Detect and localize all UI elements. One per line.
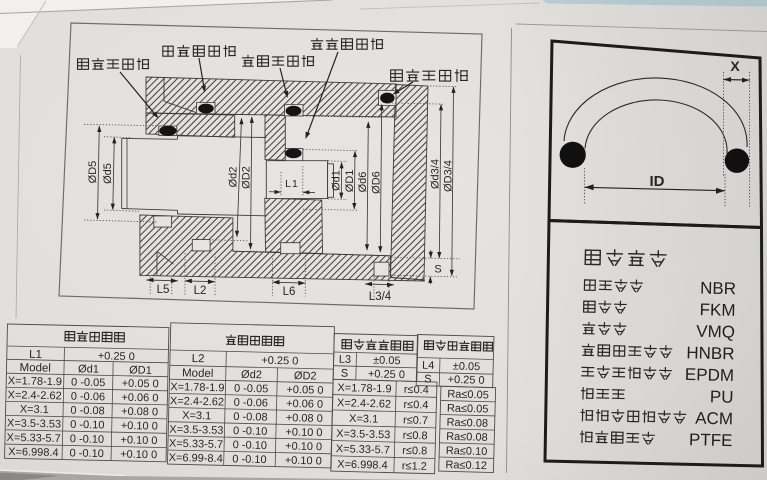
svg-text:L2: L2 (194, 285, 207, 297)
svg-text:Ød3/4: Ød3/4 (430, 159, 442, 189)
svg-text:X=3.1: X=3.1 (20, 403, 49, 416)
svg-text:0 -0.10: 0 -0.10 (70, 433, 105, 446)
svg-text:X=6.998.4: X=6.998.4 (337, 459, 388, 472)
svg-text:L1: L1 (29, 349, 42, 361)
svg-text:Ra≤0.08: Ra≤0.08 (446, 417, 488, 430)
svg-text:+0.10 0: +0.10 0 (120, 434, 157, 447)
svg-text:r≤0.7: r≤0.7 (403, 414, 428, 427)
svg-text:+0.10 0: +0.10 0 (121, 420, 158, 433)
svg-text:VMQ: VMQ (696, 322, 735, 342)
svg-text:0 -0.08: 0 -0.08 (233, 411, 268, 424)
svg-text:S: S (424, 373, 432, 385)
svg-text:+0.06 0: +0.06 0 (286, 398, 323, 411)
svg-text:ØD6: ØD6 (370, 171, 382, 194)
svg-text:ACM: ACM (695, 409, 733, 429)
svg-text:X=3.1: X=3.1 (182, 410, 211, 423)
svg-text:0 -0.06: 0 -0.06 (234, 397, 269, 410)
svg-text:X=3.5-3.53: X=3.5-3.53 (336, 428, 390, 441)
svg-text:ØD5: ØD5 (87, 161, 99, 184)
svg-text:ØD1: ØD1 (129, 364, 152, 376)
svg-text:Ra≤0.08: Ra≤0.08 (446, 431, 488, 444)
svg-text:0 -0.06: 0 -0.06 (71, 391, 106, 404)
svg-text:Model: Model (19, 362, 51, 375)
svg-text:+0.08 0: +0.08 0 (121, 406, 158, 419)
svg-text:FKM: FKM (699, 300, 735, 320)
svg-text:0 -0.10: 0 -0.10 (232, 453, 267, 466)
svg-text:Ød2: Ød2 (241, 369, 262, 381)
svg-text:Ød5: Ød5 (102, 163, 114, 184)
svg-text:EPDM: EPDM (685, 365, 735, 385)
svg-text:X=3.5-3.53: X=3.5-3.53 (169, 424, 223, 437)
svg-text:X: X (730, 58, 740, 74)
svg-text:ØD3/4: ØD3/4 (442, 160, 454, 192)
svg-text:+0.05 0: +0.05 0 (286, 384, 323, 397)
svg-text:Ød1: Ød1 (78, 363, 99, 375)
svg-text:r≤0.8: r≤0.8 (402, 430, 427, 443)
svg-text:0 -0.08: 0 -0.08 (70, 405, 105, 418)
svg-text:+0.05 0: +0.05 0 (122, 378, 159, 391)
svg-text:X=6.99-8.4: X=6.99-8.4 (169, 452, 223, 465)
svg-text:+0.10 0: +0.10 0 (285, 440, 322, 453)
svg-text:X=2.4-2.62: X=2.4-2.62 (7, 389, 61, 402)
svg-text:ID: ID (650, 173, 665, 190)
svg-text:X=2.4-2.62: X=2.4-2.62 (170, 395, 224, 408)
svg-text:Ød1: Ød1 (330, 170, 342, 191)
svg-text:S: S (341, 367, 349, 379)
svg-text:Model: Model (182, 367, 214, 380)
svg-text:r≤0.8: r≤0.8 (402, 445, 427, 458)
svg-text:±0.05: ±0.05 (453, 360, 481, 373)
svg-text:ØD2: ØD2 (240, 166, 252, 189)
svg-text:Ød6: Ød6 (357, 172, 369, 193)
svg-text:ØD1: ØD1 (344, 170, 356, 193)
svg-text:L3/4: L3/4 (369, 291, 392, 303)
svg-text:X=1.78-1.9: X=1.78-1.9 (170, 381, 224, 394)
svg-text:+0.25 0: +0.25 0 (368, 368, 405, 381)
svg-text:0 -0.05: 0 -0.05 (234, 383, 269, 396)
svg-text:Ra≤0.12: Ra≤0.12 (445, 459, 487, 472)
svg-text:X=3.5-3.53: X=3.5-3.53 (7, 417, 61, 430)
svg-text:0 -0.10: 0 -0.10 (233, 425, 268, 438)
svg-text:L6: L6 (283, 286, 296, 298)
svg-text:NBR: NBR (700, 278, 736, 298)
svg-text:Ød2: Ød2 (228, 167, 240, 188)
svg-text:+0.25 0: +0.25 0 (447, 374, 484, 387)
svg-text:PTFE: PTFE (689, 430, 733, 450)
svg-text:+0.10 0: +0.10 0 (120, 448, 157, 461)
svg-text:X=3.1: X=3.1 (349, 413, 378, 426)
svg-text:X=1.78-1.9: X=1.78-1.9 (8, 375, 62, 388)
svg-text:+0.10 0: +0.10 0 (285, 426, 322, 439)
svg-text:+0.06 0: +0.06 0 (121, 392, 158, 405)
svg-text:Ra≤0.05: Ra≤0.05 (447, 402, 489, 415)
svg-text:PU: PU (710, 387, 734, 407)
svg-text:Ra≤0.05: Ra≤0.05 (447, 388, 489, 401)
svg-text:L3: L3 (339, 354, 352, 366)
svg-text:r≤0.4: r≤0.4 (403, 399, 428, 412)
svg-text:X=1.78-1.9: X=1.78-1.9 (337, 382, 391, 395)
svg-text:0 -0.05: 0 -0.05 (71, 377, 106, 390)
svg-text:+0.25 0: +0.25 0 (98, 350, 135, 363)
svg-text:0 -0.10: 0 -0.10 (69, 447, 104, 460)
svg-text:L1: L1 (285, 178, 299, 190)
svg-text:X=5.33-5.7: X=5.33-5.7 (7, 432, 61, 445)
svg-text:ØD2: ØD2 (294, 370, 317, 383)
svg-text:L2: L2 (192, 353, 205, 365)
svg-text:HNBR: HNBR (686, 343, 735, 363)
svg-text:0 -0.10: 0 -0.10 (233, 439, 268, 452)
svg-text:r≤1.2: r≤1.2 (402, 460, 427, 473)
svg-text:X=6.998.4: X=6.998.4 (8, 446, 59, 459)
svg-text:X=2.4-2.62: X=2.4-2.62 (337, 397, 391, 410)
svg-text:0 -0.10: 0 -0.10 (70, 419, 105, 432)
svg-text:+0.25 0: +0.25 0 (261, 355, 298, 368)
svg-text:+0.08 0: +0.08 0 (286, 412, 323, 425)
svg-text:±0.05: ±0.05 (373, 355, 401, 368)
svg-text:X=5.33-5.7: X=5.33-5.7 (169, 438, 223, 451)
svg-text:Ra≤0.10: Ra≤0.10 (446, 445, 488, 458)
svg-text:X=5.33-5.7: X=5.33-5.7 (336, 443, 390, 456)
svg-text:S: S (434, 264, 441, 276)
svg-text:L4: L4 (422, 360, 435, 372)
svg-text:L5: L5 (157, 284, 170, 296)
svg-text:+0.10 0: +0.10 0 (285, 455, 322, 468)
